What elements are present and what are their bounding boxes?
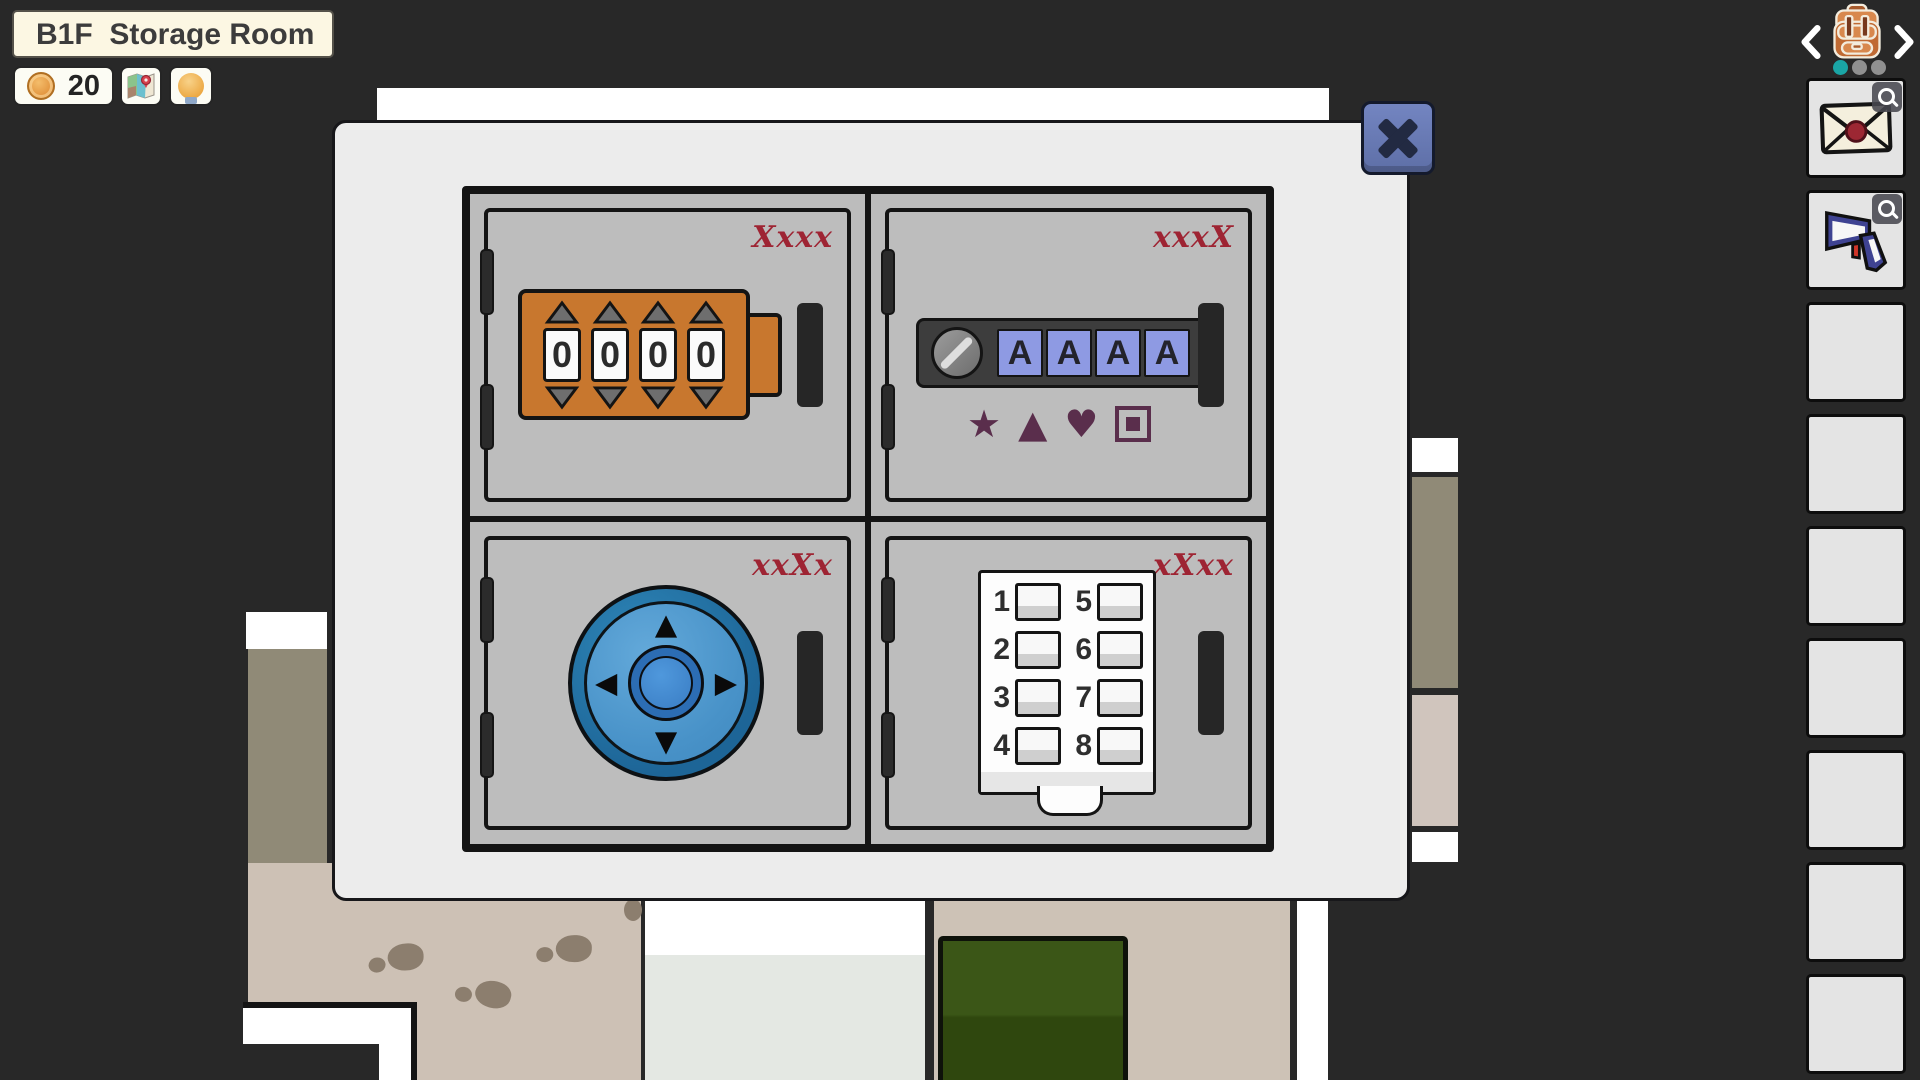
dial-column: 0: [591, 300, 629, 410]
inventory-slot-empty[interactable]: [1806, 750, 1906, 850]
inventory-slot-empty[interactable]: [1806, 526, 1906, 626]
keypad-panel: 1 5 2 6 3 7 4 8: [978, 570, 1156, 795]
keypad-button-1[interactable]: [1015, 583, 1061, 621]
coin-icon: [27, 72, 55, 100]
footprint: [366, 940, 428, 980]
hinge-icon: [881, 249, 895, 315]
footprint: [535, 933, 596, 969]
dial-down-button[interactable]: [688, 385, 724, 410]
letter-button-2[interactable]: A: [1046, 329, 1092, 377]
dial-digit-window: 0: [543, 328, 581, 382]
dial-down-button[interactable]: [544, 385, 580, 410]
locker-bottom-right: xXxx 1 5 2 6 3 7: [868, 519, 1269, 847]
room-right-wall-block: [1412, 438, 1458, 472]
inventory-slot-scanner[interactable]: [1806, 190, 1906, 290]
triangle-symbol: ▲: [1018, 406, 1047, 442]
locker-top-left: Xxxx 0 0 0: [467, 191, 868, 519]
dpad-center-button[interactable]: [639, 656, 693, 710]
keypad-button-7[interactable]: [1097, 679, 1143, 717]
keypad-label-6: 6: [1066, 631, 1092, 669]
dpad-down-button[interactable]: ▼: [655, 727, 677, 756]
dial-down-button[interactable]: [592, 385, 628, 410]
screw-dial-icon: [931, 327, 983, 379]
dial-column: 0: [639, 300, 677, 410]
page-dot: [1852, 60, 1867, 75]
dpad-right-button[interactable]: ▶: [715, 669, 737, 698]
inventory-next-button[interactable]: [1893, 25, 1915, 59]
keypad-panel-tab: [1037, 786, 1103, 816]
letter-lock-bar: A A A A: [916, 318, 1206, 388]
dial-column: 0: [687, 300, 725, 410]
dial-digit-window: 0: [639, 328, 677, 382]
room-floor-gray: [645, 901, 925, 1080]
hinge-icon: [480, 577, 494, 643]
dial-digit: 0: [648, 334, 668, 376]
footprint-partial: [624, 899, 642, 921]
magnifier-badge[interactable]: [1872, 194, 1902, 224]
room-wall-block: [246, 612, 327, 649]
hinge-icon: [480, 249, 494, 315]
letter-button-1[interactable]: A: [997, 329, 1043, 377]
keypad-button-2[interactable]: [1015, 631, 1061, 669]
game-screen: B1F Storage Room 20: [0, 0, 1920, 1080]
inventory-slot-empty[interactable]: [1806, 414, 1906, 514]
page-dot: [1871, 60, 1886, 75]
room-wall-bottom: [645, 901, 925, 955]
dial-down-button[interactable]: [640, 385, 676, 410]
dial-digit: 0: [600, 334, 620, 376]
locker-grid: Xxxx 0 0 0: [462, 186, 1274, 852]
dial-digit: 0: [552, 334, 572, 376]
room-olive-block: [248, 649, 327, 863]
close-button[interactable]: [1361, 101, 1435, 175]
letter-button-4[interactable]: A: [1144, 329, 1190, 377]
keypad-label-7: 7: [1066, 679, 1092, 717]
keypad-label-4: 4: [990, 727, 1010, 765]
locker-code-label: xXxx: [1153, 548, 1234, 583]
locker-code-label: xxXx: [752, 548, 833, 583]
magnifier-badge[interactable]: [1872, 82, 1902, 112]
dpad-left-button[interactable]: ◀: [595, 669, 617, 698]
square-in-square-symbol: [1115, 406, 1151, 442]
hinge-icon: [881, 577, 895, 643]
locker-bottom-left: xxXx ▲ ▼ ◀ ▶: [467, 519, 868, 847]
keypad-label-2: 2: [990, 631, 1010, 669]
hint-button[interactable]: [169, 66, 213, 106]
keypad-button-4[interactable]: [1015, 727, 1061, 765]
hinge-icon: [480, 712, 494, 778]
dial-up-button[interactable]: [592, 300, 628, 325]
locker-handle[interactable]: [1198, 631, 1224, 735]
green-mat: [938, 936, 1128, 1080]
locker-handle[interactable]: [797, 631, 823, 735]
direction-pad: ▲ ▼ ◀ ▶: [568, 585, 764, 781]
heart-symbol: ♥: [1064, 406, 1098, 442]
locker-modal: Xxxx 0 0 0: [332, 120, 1410, 901]
dial-up-button[interactable]: [688, 300, 724, 325]
star-symbol: ★: [967, 406, 1001, 442]
lightbulb-icon: [178, 73, 204, 99]
room-right-wall-block-2: [1412, 832, 1458, 862]
room-wall-strip: [377, 88, 1329, 121]
map-button[interactable]: [120, 66, 162, 106]
letter-button-3[interactable]: A: [1095, 329, 1141, 377]
keypad-button-5[interactable]: [1097, 583, 1143, 621]
hinge-icon: [881, 384, 895, 450]
four-digit-dial-lock: 0 0 0 0: [518, 289, 750, 420]
coin-counter: 20: [13, 66, 114, 106]
chevron-left-icon: [1800, 25, 1822, 59]
chevron-right-icon: [1893, 25, 1915, 59]
inventory-page-dots: [1833, 60, 1886, 75]
keypad-button-8[interactable]: [1097, 727, 1143, 765]
room-wall-strip-bottom: [1297, 901, 1328, 1080]
locker-code-label: Xxxx: [752, 220, 833, 255]
dial-digit-window: 0: [591, 328, 629, 382]
inventory-slot-empty[interactable]: [1806, 862, 1906, 962]
hinge-icon: [881, 712, 895, 778]
room-right-beige-block: [1412, 695, 1458, 826]
locker-handle[interactable]: [1198, 303, 1224, 407]
locker-code-label: xxxX: [1153, 220, 1234, 255]
inventory-slot-empty[interactable]: [1806, 638, 1906, 738]
keypad-label-3: 3: [990, 679, 1010, 717]
inventory-slot-envelope[interactable]: [1806, 78, 1906, 178]
locker-top-right: xxxX A A A A ★ ▲ ♥: [868, 191, 1269, 519]
symbol-hint-row: ★ ▲ ♥: [967, 406, 1151, 442]
room-wall-notch: [243, 1044, 379, 1080]
room-floor-right: [934, 901, 1290, 1080]
inventory-prev-button[interactable]: [1800, 25, 1822, 59]
footprint: [454, 977, 515, 1013]
keypad-button-3[interactable]: [1015, 679, 1061, 717]
dial-digit-window: 0: [687, 328, 725, 382]
dial-column: 0: [543, 300, 581, 410]
dpad-up-button[interactable]: ▲: [655, 610, 677, 639]
page-dot-active: [1833, 60, 1848, 75]
dial-up-button[interactable]: [544, 300, 580, 325]
hinge-icon: [480, 384, 494, 450]
keypad-button-6[interactable]: [1097, 631, 1143, 669]
dial-digit: 0: [696, 334, 716, 376]
locker-handle[interactable]: [797, 303, 823, 407]
location-label: B1F Storage Room: [12, 10, 334, 58]
letter-buttons: A A A A: [997, 329, 1190, 377]
inventory-slot-empty[interactable]: [1806, 974, 1906, 1074]
keypad-label-8: 8: [1066, 727, 1092, 765]
keypad-grid: 1 5 2 6 3 7 4 8: [990, 583, 1143, 775]
map-icon: [126, 72, 156, 100]
keypad-label-5: 5: [1066, 583, 1092, 621]
backpack-icon[interactable]: [1826, 3, 1888, 63]
keypad-label-1: 1: [990, 583, 1010, 621]
room-right-olive-block: [1412, 477, 1458, 688]
dial-up-button[interactable]: [640, 300, 676, 325]
inventory-slot-empty[interactable]: [1806, 302, 1906, 402]
coin-count: 20: [68, 70, 100, 103]
